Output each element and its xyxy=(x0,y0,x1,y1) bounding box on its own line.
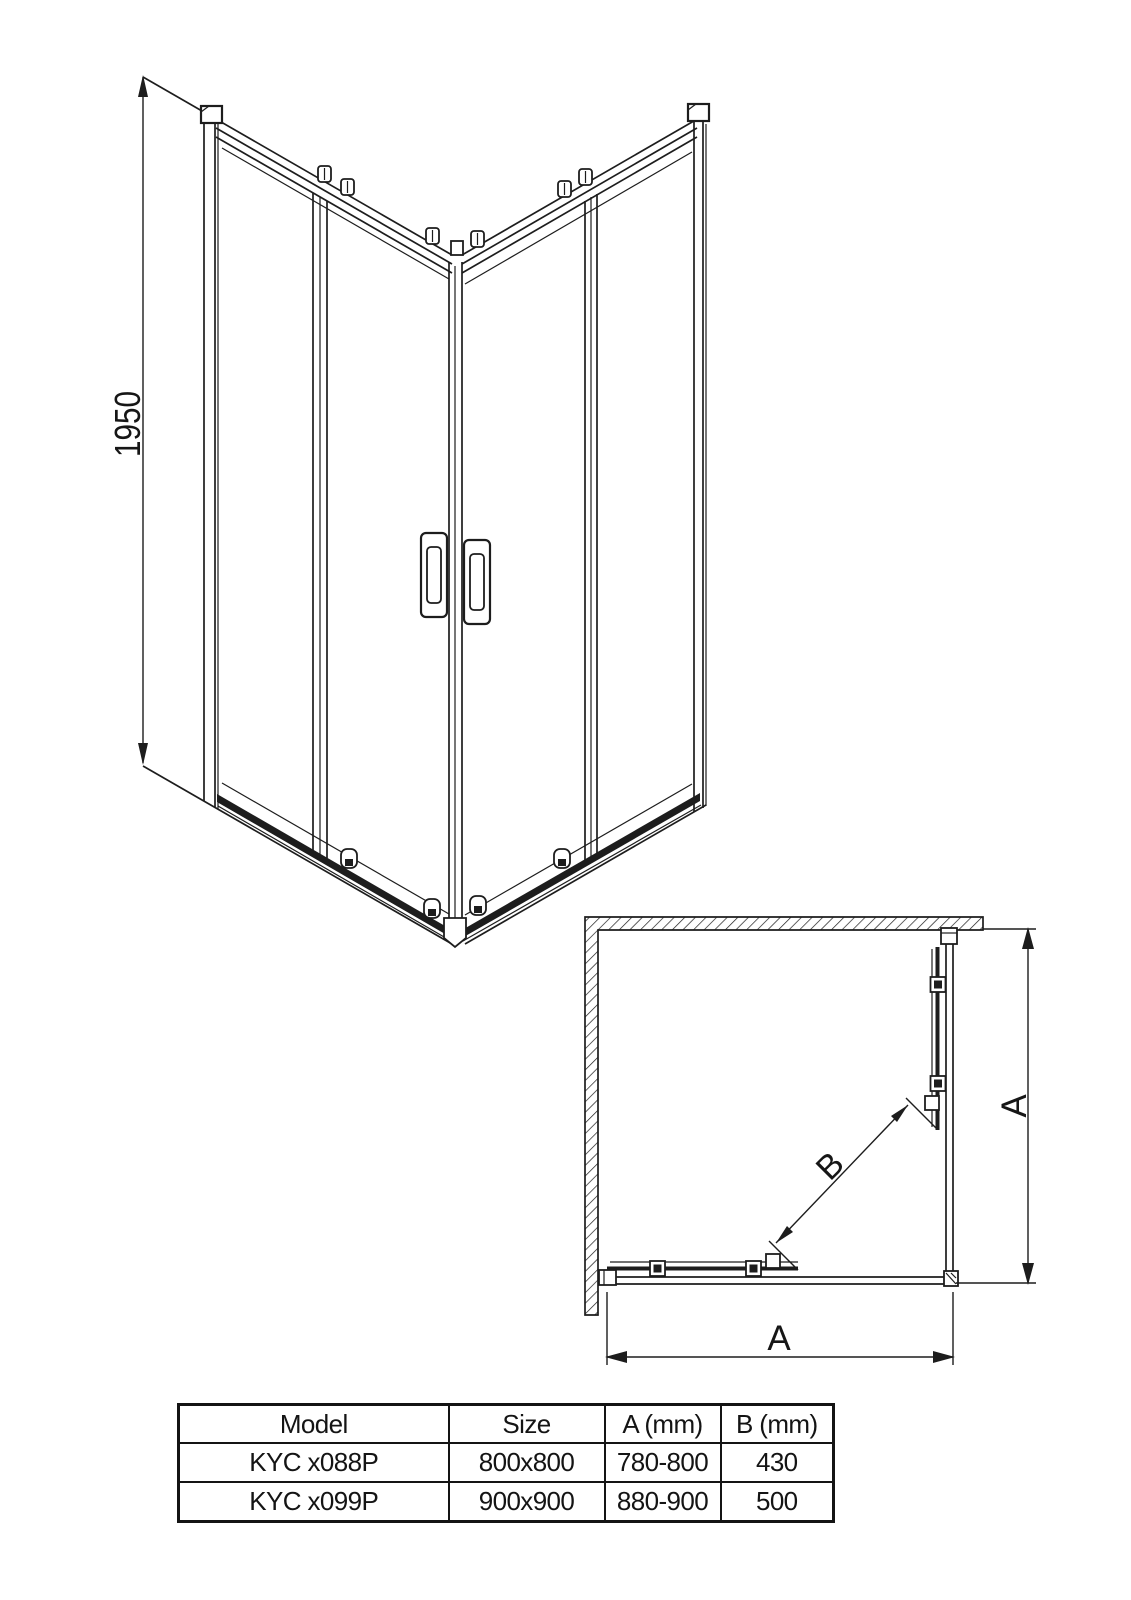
bottom-corner-block xyxy=(444,918,466,947)
diagonal-dimension: B xyxy=(769,1098,937,1270)
cell-size: 800x800 xyxy=(449,1443,605,1482)
arrow-up-icon xyxy=(1022,927,1034,949)
cell-model: KYC x099P xyxy=(179,1482,449,1522)
spec-table: Model Size A (mm) B (mm) KYC x088P 800x8… xyxy=(177,1403,835,1523)
height-dimension-label: 1950 xyxy=(107,391,148,457)
plan-door-rollers xyxy=(650,977,946,1276)
depth-dimension-label: A xyxy=(995,1094,1034,1118)
cell-a-mm: 880-900 xyxy=(605,1482,721,1522)
right-top-rail xyxy=(462,114,706,284)
width-dimension-label: A xyxy=(767,1319,791,1358)
cell-b-mm: 500 xyxy=(721,1482,834,1522)
arrow-right-icon xyxy=(933,1351,955,1363)
right-wall-profile xyxy=(694,121,706,812)
spec-table-row: KYC x099P 900x900 880-900 500 xyxy=(179,1482,834,1522)
right-panel-junction xyxy=(585,194,597,860)
width-dimension: A xyxy=(605,1292,955,1365)
depth-dimension: A xyxy=(956,927,1036,1285)
spec-table-row: KYC x088P 800x800 780-800 430 xyxy=(179,1443,834,1482)
diagonal-dimension-label: B xyxy=(809,1145,852,1188)
cell-b-mm: 430 xyxy=(721,1443,834,1482)
plan-view-drawing: B A A xyxy=(585,917,1036,1365)
shower-enclosure-drawing: 1950 xyxy=(0,0,1131,1600)
plan-glass-panels xyxy=(598,941,958,1284)
plan-door-handles xyxy=(766,1096,939,1268)
left-top-rail xyxy=(143,77,452,279)
technical-drawing-page: 1950 xyxy=(0,0,1131,1600)
arrow-left-icon xyxy=(605,1351,627,1363)
plan-corner-block xyxy=(944,1271,958,1286)
header-a-mm: A (mm) xyxy=(605,1405,721,1444)
spec-table-header-row: Model Size A (mm) B (mm) xyxy=(179,1405,834,1444)
plan-wall-profiles xyxy=(599,928,957,1285)
plan-sliding-doors xyxy=(607,947,938,1269)
left-wall-profile xyxy=(204,122,218,809)
header-b-mm: B (mm) xyxy=(721,1405,834,1444)
left-panel-junction xyxy=(313,193,327,858)
cell-size: 900x900 xyxy=(449,1482,605,1522)
front-view-drawing: 1950 xyxy=(107,75,709,947)
corner-post xyxy=(449,262,462,926)
top-roller-hangers xyxy=(318,166,592,247)
height-dimension: 1950 xyxy=(107,75,148,765)
header-model: Model xyxy=(179,1405,449,1444)
arrow-down-icon xyxy=(138,743,148,765)
header-size: Size xyxy=(449,1405,605,1444)
cell-a-mm: 780-800 xyxy=(605,1443,721,1482)
cell-model: KYC x088P xyxy=(179,1443,449,1482)
arrow-down-icon xyxy=(1022,1263,1034,1285)
